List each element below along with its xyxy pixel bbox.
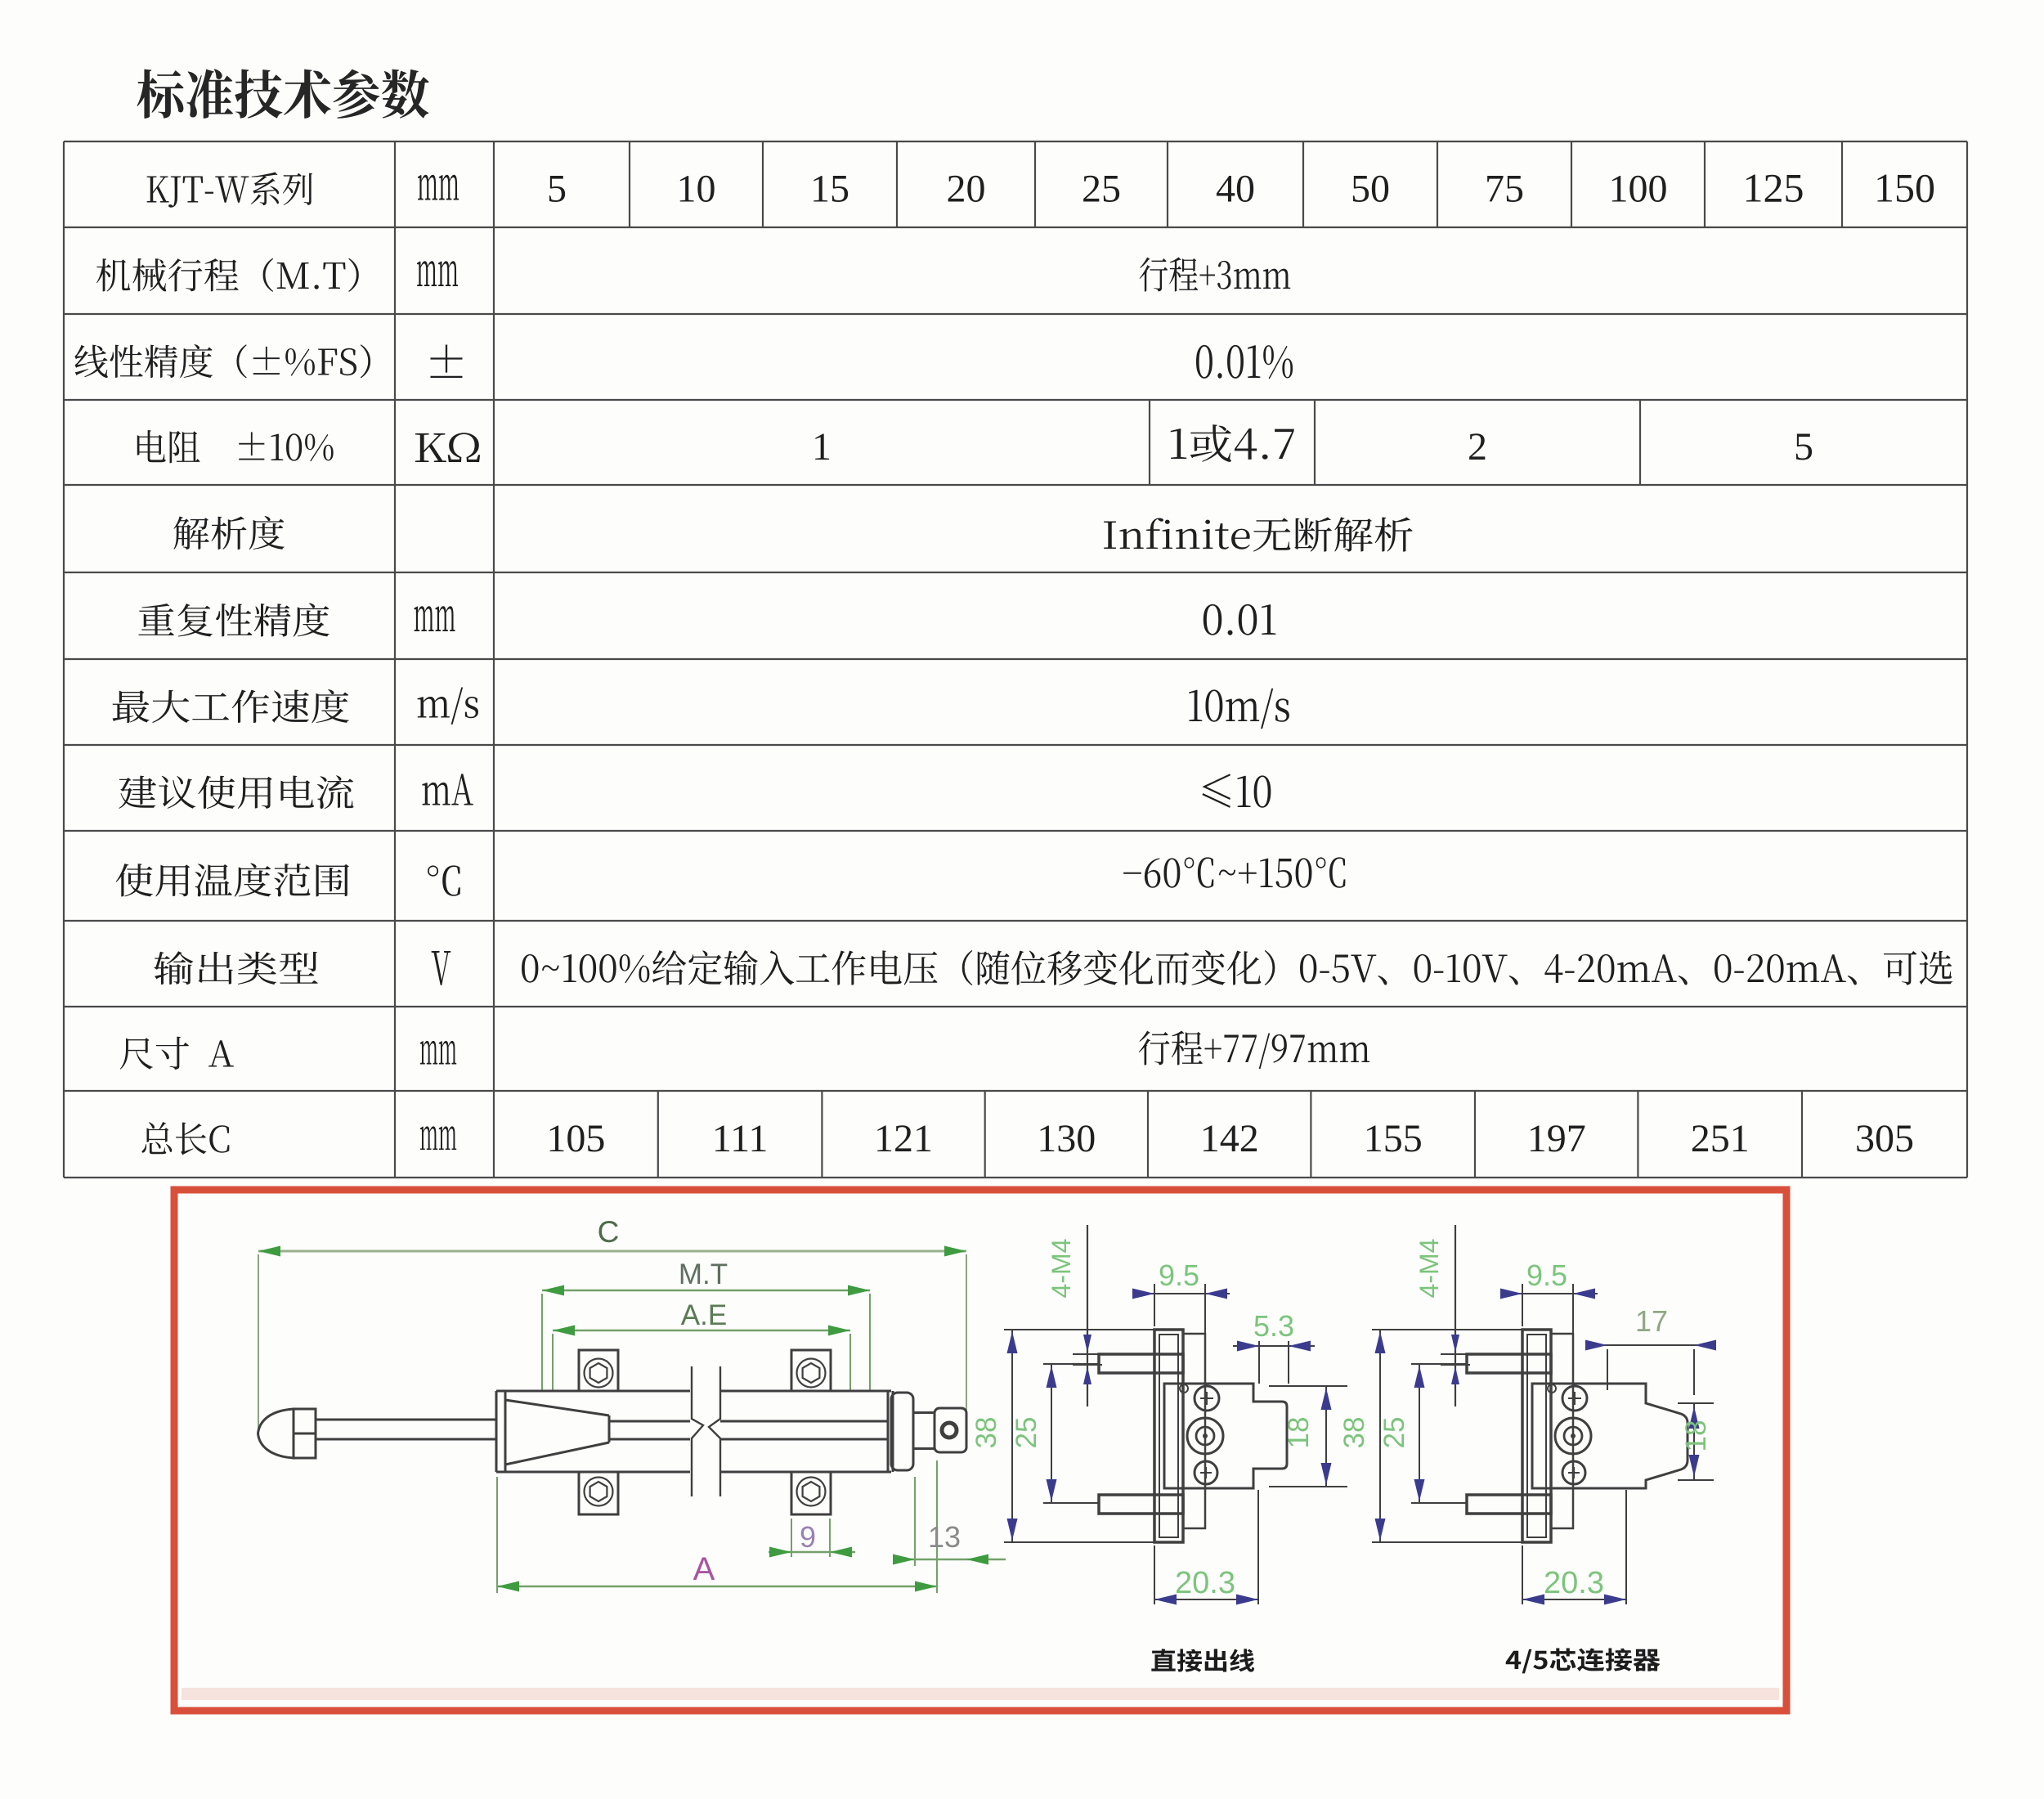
- svg-text:150: 150: [1874, 165, 1935, 211]
- svg-text:197: 197: [1527, 1117, 1586, 1160]
- svg-text:9.5: 9.5: [1159, 1258, 1199, 1292]
- svg-text:251: 251: [1691, 1117, 1750, 1160]
- svg-text:75: 75: [1485, 168, 1524, 211]
- svg-text:5: 5: [1794, 425, 1813, 469]
- svg-text:38: 38: [1338, 1417, 1370, 1449]
- svg-text:1: 1: [812, 425, 831, 469]
- svg-text:15: 15: [810, 168, 849, 211]
- svg-text:125: 125: [1743, 165, 1804, 211]
- svg-text:25: 25: [1082, 168, 1121, 211]
- svg-text:9.5: 9.5: [1526, 1258, 1567, 1292]
- svg-text:13: 13: [928, 1520, 961, 1554]
- svg-text:111: 111: [712, 1117, 768, 1160]
- svg-text:18: 18: [1283, 1417, 1315, 1449]
- svg-text:100: 100: [1609, 168, 1668, 211]
- svg-text:20.3: 20.3: [1544, 1566, 1604, 1600]
- svg-text:4-M4: 4-M4: [1047, 1239, 1076, 1299]
- svg-text:38: 38: [970, 1417, 1002, 1449]
- svg-text:4-M4: 4-M4: [1414, 1239, 1444, 1299]
- svg-text:155: 155: [1364, 1117, 1423, 1160]
- svg-text:10: 10: [677, 168, 716, 211]
- svg-text:17: 17: [1635, 1304, 1668, 1338]
- svg-text:M.T: M.T: [679, 1258, 728, 1290]
- svg-text:2: 2: [1468, 425, 1487, 469]
- svg-text:5: 5: [547, 168, 567, 211]
- svg-text:18: 18: [1680, 1420, 1712, 1452]
- svg-text:5.3: 5.3: [1253, 1309, 1294, 1343]
- svg-text:130: 130: [1037, 1117, 1096, 1160]
- svg-text:142: 142: [1200, 1117, 1259, 1160]
- svg-text:A.E: A.E: [681, 1299, 727, 1331]
- svg-text:40: 40: [1216, 168, 1255, 211]
- svg-text:9: 9: [800, 1520, 816, 1554]
- svg-text:C: C: [598, 1215, 620, 1249]
- svg-text:50: 50: [1351, 168, 1390, 211]
- svg-text:25: 25: [1378, 1417, 1410, 1449]
- svg-text:105: 105: [546, 1117, 605, 1160]
- svg-text:20: 20: [947, 168, 986, 211]
- svg-text:25: 25: [1011, 1417, 1042, 1449]
- svg-text:121: 121: [874, 1117, 933, 1160]
- svg-text:20.3: 20.3: [1175, 1566, 1235, 1600]
- svg-text:A: A: [693, 1551, 715, 1587]
- svg-text:305: 305: [1855, 1117, 1914, 1160]
